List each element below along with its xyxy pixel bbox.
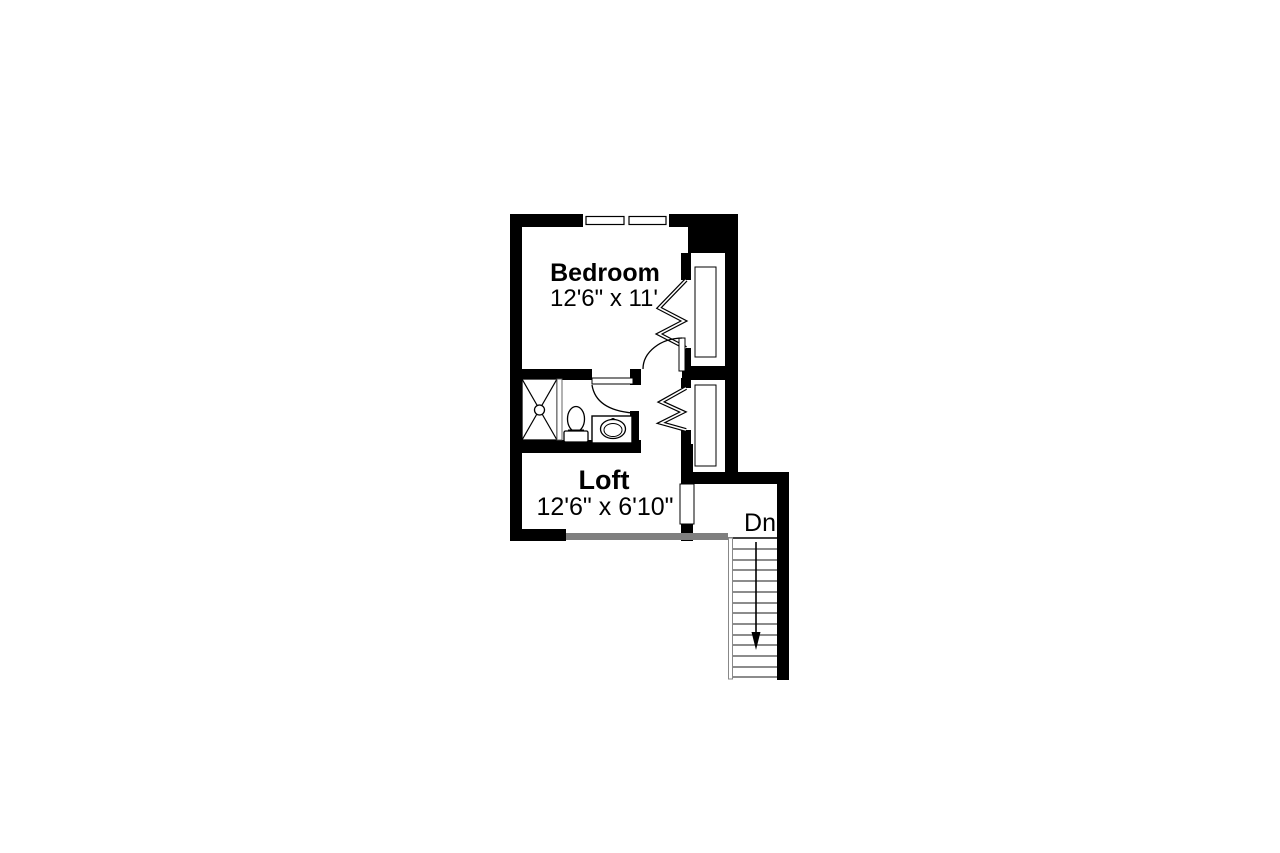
bedroom-label: Bedroom [550,259,660,287]
loft-label: Loft [579,465,630,495]
wall-landing-north [681,472,789,484]
floor-plan-drawing: Bedroom 12'6" x 11' Loft 12'6" x 6'10" D… [0,0,1280,853]
toilet-icon [564,407,588,443]
shower-drain [535,405,545,415]
door-leaf [679,338,685,371]
closet-shelf [695,267,716,357]
bathroom-door [592,378,633,413]
closet-shelf [695,385,716,466]
closet-hall-jamb-south [681,430,691,444]
bedroom-closet [659,267,716,357]
cased-opening [680,484,694,524]
shower-icon [522,379,562,440]
stairs-down-label: Dn [744,509,776,537]
loft-dimensions: 12'6" x 6'10" [536,493,673,521]
bathroom [522,379,632,443]
stair-stringer [729,538,733,679]
bedroom-dimensions: 12'6" x 11' [550,285,658,312]
labels: Bedroom 12'6" x 11' Loft 12'6" x 6'10" D… [536,259,776,537]
window [583,213,669,228]
closet-hall-jamb-north [681,378,691,388]
toilet-bowl [568,407,585,432]
down-arrow-icon [752,542,761,650]
sink-icon [592,416,632,443]
shower-glass [557,379,562,440]
toilet-tank [564,431,588,442]
wall-stairs-east [777,472,789,680]
door-leaf [592,378,633,384]
stair-treads [733,549,777,677]
loft-railing [566,533,728,540]
wall-loft-south [510,529,566,541]
wall-right [725,214,738,484]
bedroom-door [643,338,685,371]
stairs [728,538,777,679]
closet-bedroom-jamb-north [681,253,691,280]
door-swing-arc [592,385,633,413]
floor-plan-page: Bedroom 12'6" x 11' Loft 12'6" x 6'10" D… [0,0,1280,853]
wall-top-west [510,214,585,227]
window-opening [583,213,669,228]
